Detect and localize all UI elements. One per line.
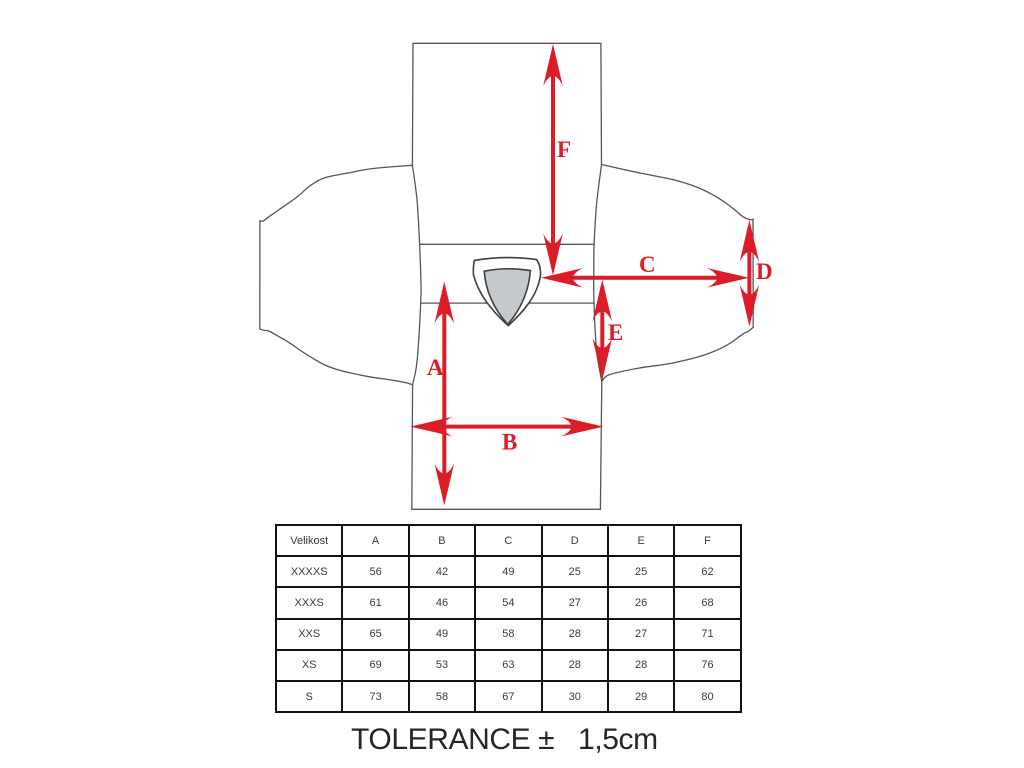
svg-text:F: F [557, 137, 571, 162]
svg-text:C: C [639, 252, 656, 277]
svg-text:A: A [427, 355, 444, 380]
svg-text:B: B [502, 430, 517, 455]
svg-text:E: E [608, 320, 623, 345]
svg-text:D: D [756, 259, 773, 284]
